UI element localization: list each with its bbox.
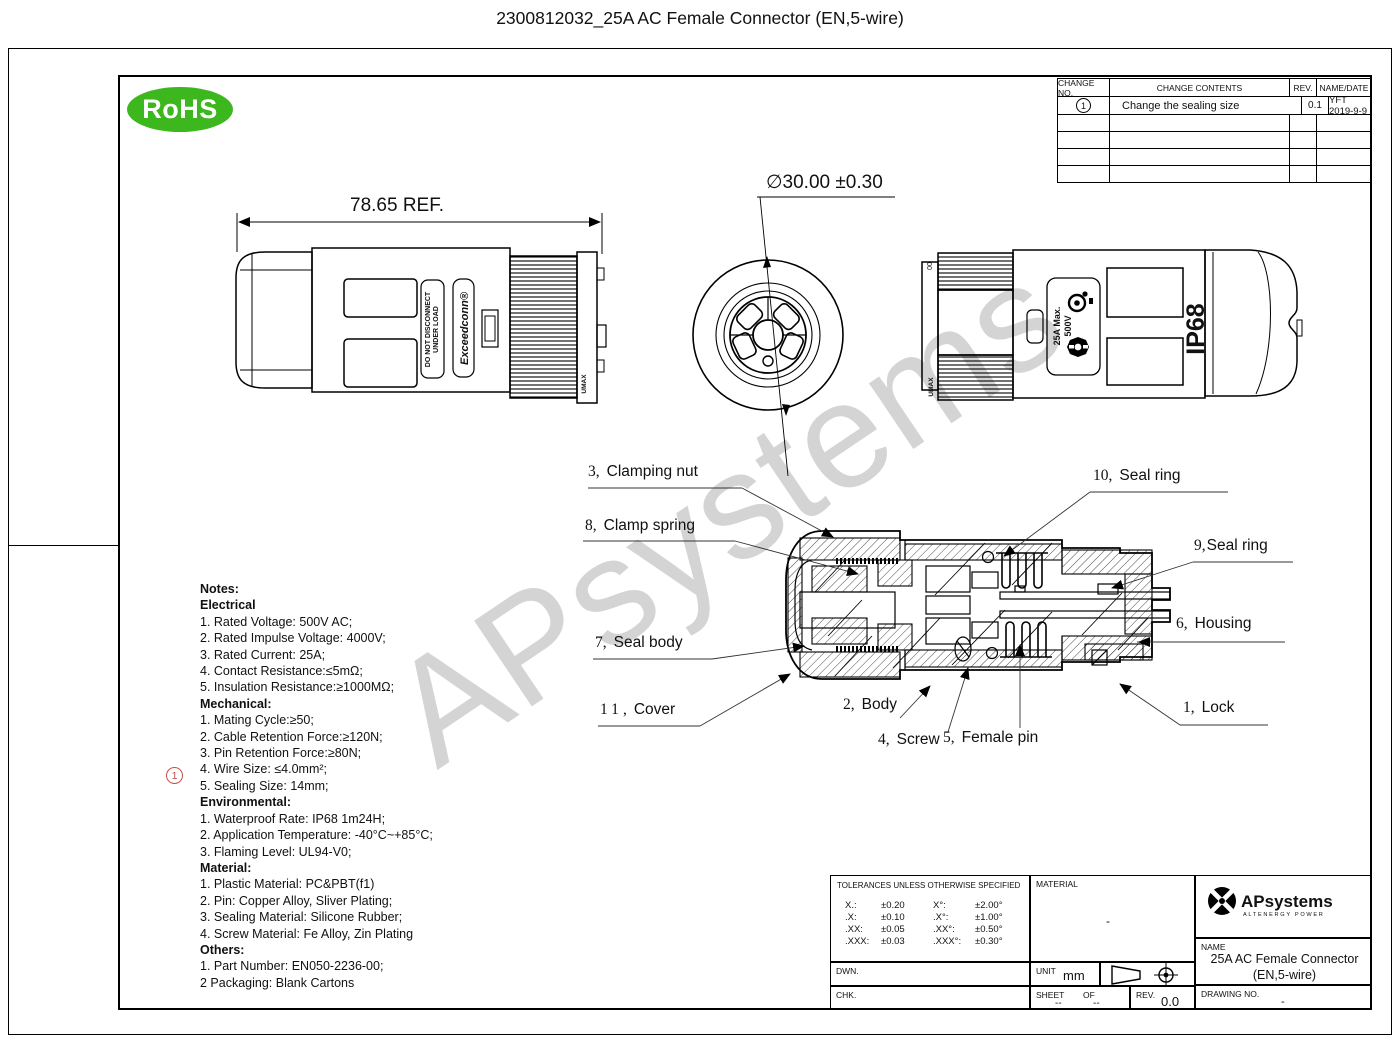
note-item: 4. Contact Resistance:≤5mΩ; — [200, 663, 500, 679]
note-item: 1. Part Number: EN050-2236-00; — [200, 958, 500, 974]
length-dimension: 78.65 REF. — [350, 195, 444, 217]
rev-header: REV. — [1289, 79, 1316, 96]
note-item: 3. Pin Retention Force:≥80N; — [200, 745, 500, 761]
note-item: 2 Packaging: Blank Cartons — [200, 975, 500, 991]
note-item: 4. Wire Size: ≤4.0mm²; — [200, 761, 500, 777]
callout-body: 2,Body — [843, 696, 897, 714]
end-marking: 00 — [925, 258, 936, 274]
umax-marking: UMAX — [926, 374, 936, 400]
empty-row — [1058, 131, 1371, 148]
note-item: 2. Pin: Copper Alloy, Sliver Plating; — [200, 893, 500, 909]
note-item: 1. Rated Voltage: 500V AC; — [200, 614, 500, 630]
callout-lock: 1,Lock — [1183, 699, 1234, 717]
unit-box: UNIT mm — [1030, 962, 1100, 986]
sheet-value: -- — [1055, 998, 1062, 1009]
change-table: CHANGE NO. CHANGE CONTENTS REV. NAME/DAT… — [1057, 78, 1372, 183]
rev-value: 0.0 — [1161, 994, 1179, 1009]
page-title: 2300812032_25A AC Female Connector (EN,5… — [0, 8, 1400, 29]
callout-female-pin: 5,Female pin — [943, 729, 1038, 747]
material-box: MATERIAL - — [1030, 875, 1195, 962]
brand-tagline: ALTENERGY POWER — [1243, 912, 1325, 918]
part-name-line2: (EN,5-wire) — [1196, 968, 1373, 982]
callout-seal-body: 7,Seal body — [595, 634, 683, 652]
name-date-cell: YFT 2019-9-9 — [1328, 97, 1371, 114]
brand-box: APsystems ALTENERGY POWER — [1195, 875, 1372, 938]
notes-heading: Environmental: — [200, 794, 500, 810]
name-date-header: NAME/DATE — [1316, 79, 1371, 96]
brand-name: APsystems — [1241, 892, 1333, 912]
umax-marking: UMAX — [579, 370, 589, 398]
change-table-row: 1 Change the sealing size 0.1 YFT 2019-9… — [1058, 96, 1371, 114]
engineering-drawing-sheet: { "page": { "title": "2300812032_25A AC … — [0, 0, 1400, 1043]
change-no-header: CHANGE NO. — [1058, 79, 1109, 96]
note-item: 5. Sealing Size: 14mm; — [200, 778, 500, 794]
note-item: 2. Application Temperature: -40°C~+85°C; — [200, 827, 500, 843]
unit-value: mm — [1063, 968, 1085, 983]
note-item: 1. Plastic Material: PC&PBT(f1) — [200, 876, 500, 892]
empty-row — [1058, 114, 1371, 131]
callout-seal-ring-10: 10,Seal ring — [1093, 467, 1181, 485]
empty-row — [1058, 148, 1371, 165]
chk-box: CHK. — [830, 986, 1030, 1010]
note-item: 4. Screw Material: Fe Alloy, Zin Plating — [200, 926, 500, 942]
ip-rating-marking: IP68 — [1183, 297, 1210, 361]
warning-marking: DO NOT DISCONNECTUNDER LOAD — [422, 282, 444, 377]
rohs-badge: RoHS — [127, 87, 233, 132]
revision-marker: 1 — [166, 767, 183, 784]
note-item: 3. Sealing Material: Silicone Rubber; — [200, 909, 500, 925]
note-item: 1. Mating Cycle:≥50; — [200, 712, 500, 728]
callout-housing: 6,Housing — [1176, 615, 1252, 633]
notes-title: Notes: — [200, 581, 500, 597]
notes-heading: Mechanical: — [200, 696, 500, 712]
callout-cover: 11,Cover — [600, 701, 675, 719]
projection-box — [1100, 962, 1195, 986]
empty-row — [1058, 165, 1371, 182]
tolerances-box: TOLERANCES UNLESS OTHERWISE SPECIFIED X.… — [830, 875, 1030, 962]
change-table-header: CHANGE NO. CHANGE CONTENTS REV. NAME/DAT… — [1058, 79, 1371, 96]
diameter-dimension: ∅30.00 ±0.30 — [766, 171, 883, 194]
note-item: 2. Cable Retention Force:≥120N; — [200, 729, 500, 745]
change-no-cell: 1 — [1058, 97, 1109, 114]
note-item: 1. Waterproof Rate: IP68 1m24H; — [200, 811, 500, 827]
callout-clamping-nut: 3,Clamping nut — [588, 463, 698, 481]
frame-center-tick — [8, 545, 118, 546]
sheet-box: SHEET OF -- -- — [1030, 986, 1130, 1010]
name-box: NAME 25A AC Female Connector (EN,5-wire) — [1195, 938, 1372, 985]
notes-heading: Others: — [200, 942, 500, 958]
rev-cell: 0.1 — [1301, 97, 1328, 114]
callout-clamp-spring: 8,Clamp spring — [585, 517, 695, 535]
part-name-line1: 25A AC Female Connector — [1196, 952, 1373, 966]
dwn-box: DWN. — [830, 962, 1030, 986]
rev-box: REV. 0.0 — [1130, 986, 1195, 1010]
brand-marking: Exceedconn® — [455, 281, 474, 376]
notes-heading: Material: — [200, 860, 500, 876]
note-item: 2. Rated Impulse Voltage: 4000V; — [200, 630, 500, 646]
material-value: - — [1106, 914, 1110, 928]
drawing-no-value: - — [1281, 996, 1285, 1008]
notes-heading: Electrical — [200, 597, 500, 613]
sheet-of-value: -- — [1093, 998, 1100, 1009]
note-item: 5. Insulation Resistance:≥1000MΩ; — [200, 679, 500, 695]
change-contents-header: CHANGE CONTENTS — [1109, 79, 1289, 96]
change-contents-cell: Change the sealing size — [1109, 97, 1301, 114]
note-item: 3. Flaming Level: UL94-V0; — [200, 844, 500, 860]
drawing-no-box: DRAWING NO. - — [1195, 985, 1372, 1010]
rating-marking: 25A Max.500V — [1050, 282, 1076, 370]
notes-block: Notes: Electrical 1. Rated Voltage: 500V… — [200, 581, 500, 991]
callout-screw: 4,Screw — [878, 731, 940, 749]
tolerances-heading: TOLERANCES UNLESS OTHERWISE SPECIFIED — [837, 881, 1020, 890]
callout-seal-ring-9: 9,Seal ring — [1194, 537, 1268, 555]
change-no-circled: 1 — [1076, 98, 1091, 113]
note-item: 3. Rated Current: 25A; — [200, 647, 500, 663]
